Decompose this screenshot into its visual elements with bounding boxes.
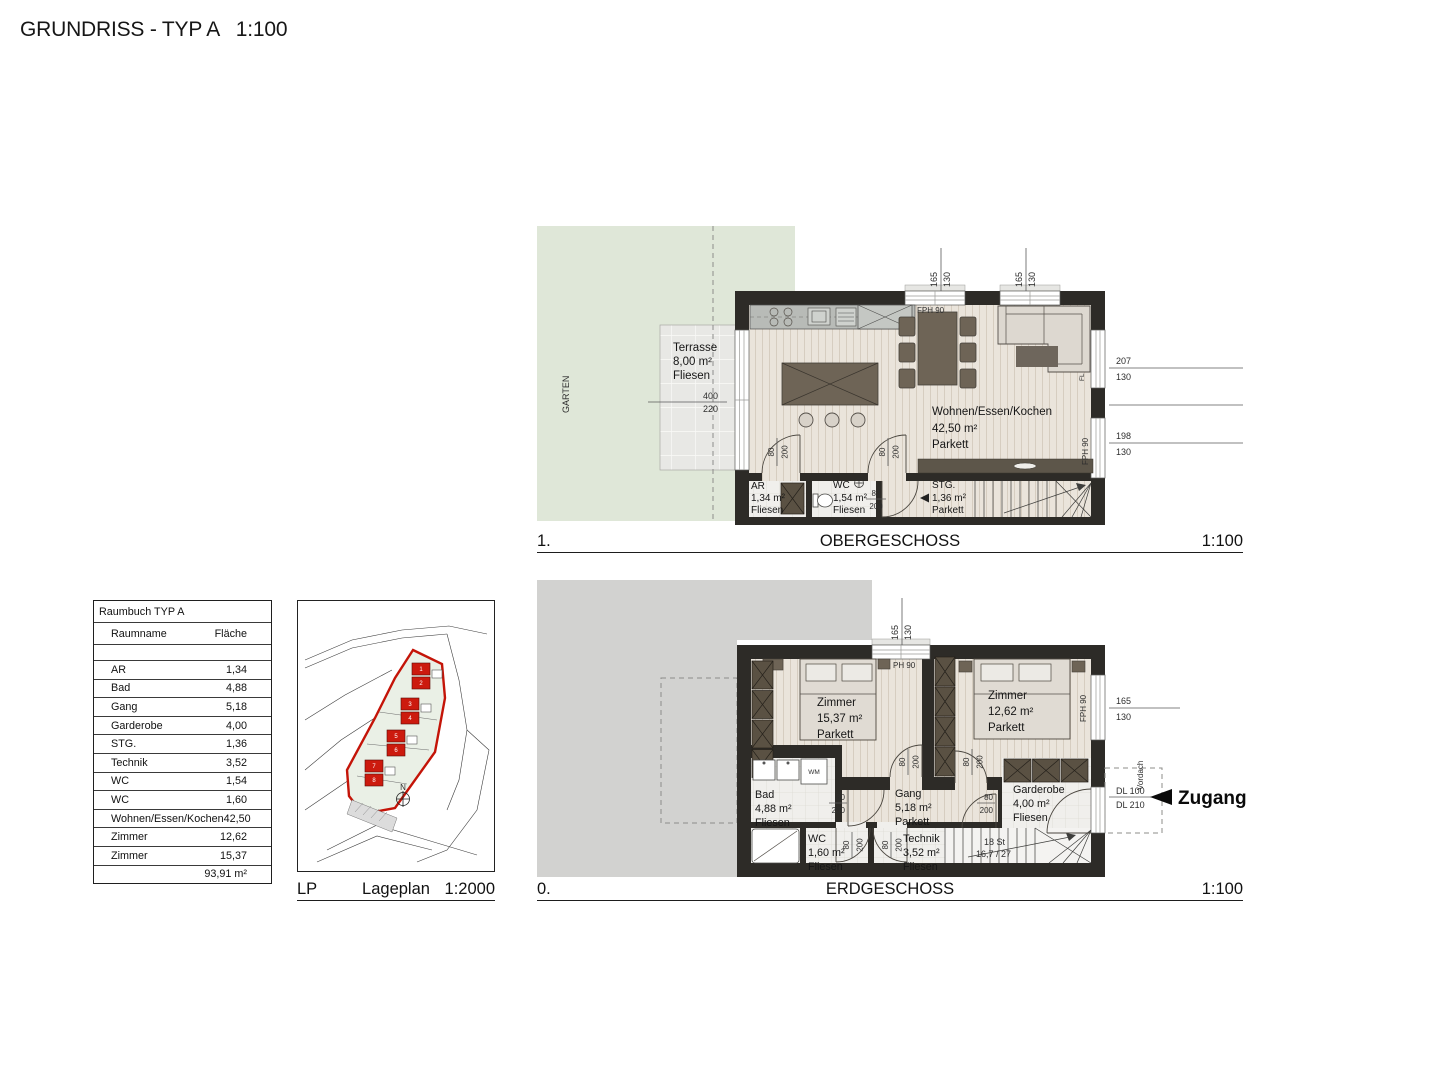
svg-text:Wohnen/Essen/Kochen: Wohnen/Essen/Kochen xyxy=(932,406,1052,418)
garden-label: GARTEN xyxy=(561,376,571,413)
svg-text:200: 200 xyxy=(892,445,901,459)
room-book-table: Raumbuch TYP A Raumname Fläche AR1,34 Ba… xyxy=(93,600,272,884)
svg-text:Fliesen: Fliesen xyxy=(1013,812,1048,824)
svg-text:3,52 m²: 3,52 m² xyxy=(903,847,940,859)
og-top-dims: 165 130 165 130 xyxy=(929,248,1037,291)
svg-text:STG.: STG. xyxy=(932,480,955,491)
svg-text:80: 80 xyxy=(962,757,971,766)
table-row: Zimmer15,37 xyxy=(94,846,271,865)
svg-text:220: 220 xyxy=(703,404,718,414)
chair-icon xyxy=(899,369,915,388)
stool-icon xyxy=(851,413,865,427)
svg-text:5,18 m²: 5,18 m² xyxy=(895,802,932,814)
eg-name: ERDGESCHOSS xyxy=(537,880,1243,899)
svg-text:WC: WC xyxy=(808,833,826,845)
coffee-table xyxy=(1016,346,1058,367)
svg-text:400: 400 xyxy=(703,391,718,401)
svg-text:200: 200 xyxy=(980,806,994,815)
svg-text:200: 200 xyxy=(869,502,883,511)
nightstand-icon xyxy=(878,659,890,669)
window xyxy=(1091,675,1105,740)
svg-text:80: 80 xyxy=(767,447,776,456)
kitchen-island xyxy=(782,363,878,405)
sheet-title: GRUNDRISS - TYP A 1:100 xyxy=(20,18,287,42)
pillow-icon xyxy=(842,664,872,681)
svg-text:1,36 m²: 1,36 m² xyxy=(932,493,967,504)
chair-icon xyxy=(960,343,976,362)
svg-text:200: 200 xyxy=(781,445,790,459)
eg-top-dim: 165 130 xyxy=(890,598,913,645)
vent-symbol-icon xyxy=(855,479,864,488)
svg-text:80: 80 xyxy=(836,793,845,802)
svg-text:130: 130 xyxy=(1116,372,1131,382)
svg-text:165: 165 xyxy=(890,625,900,640)
floor-plan-og: GARTEN Terrasse 8,00 m² Fliesen 400 220 xyxy=(530,190,1250,555)
svg-text:Gang: Gang xyxy=(895,788,921,800)
table-row: Bad4,88 xyxy=(94,679,271,698)
svg-text:Zimmer: Zimmer xyxy=(988,690,1027,702)
svg-text:Fliesen: Fliesen xyxy=(808,861,843,873)
table-row: Garderobe4,00 xyxy=(94,716,271,735)
svg-text:Parkett: Parkett xyxy=(932,505,964,516)
eg-caption: 0. ERDGESCHOSS 1:100 xyxy=(537,879,1243,901)
site-plan: 12 34 56 78 N xyxy=(297,600,495,872)
table-row: STG.1,36 xyxy=(94,734,271,753)
bar-stools xyxy=(799,413,865,427)
svg-text:165: 165 xyxy=(1116,696,1131,706)
svg-text:130: 130 xyxy=(1027,272,1037,287)
og-scale: 1:100 xyxy=(1202,532,1243,551)
svg-text:Fliesen: Fliesen xyxy=(833,505,865,516)
lp-caption: LP Lageplan 1:2000 xyxy=(297,879,495,901)
chair-icon xyxy=(899,343,915,362)
svg-text:Garderobe: Garderobe xyxy=(1013,784,1065,796)
table-header: Raumname Fläche xyxy=(94,622,271,644)
window-sill xyxy=(872,639,930,645)
door-opening xyxy=(955,777,987,790)
technik-label: Technik 3,52 m² Fliesen xyxy=(903,833,940,873)
svg-text:200: 200 xyxy=(832,806,846,815)
svg-text:200: 200 xyxy=(976,755,985,769)
svg-text:80: 80 xyxy=(898,757,907,766)
svg-text:DL 210: DL 210 xyxy=(1116,800,1145,810)
wardrobe-garderobe xyxy=(1004,759,1088,782)
svg-text:Fliesen: Fliesen xyxy=(903,861,938,873)
col-room: Raumname xyxy=(111,628,167,640)
zugang-arrow-icon xyxy=(1150,789,1172,805)
chair-icon xyxy=(899,317,915,336)
svg-text:130: 130 xyxy=(903,625,913,640)
lp-scale: 1:2000 xyxy=(445,880,495,899)
svg-text:1,54 m²: 1,54 m² xyxy=(833,493,868,504)
table-row: AR1,34 xyxy=(94,660,271,679)
svg-text:Fliesen: Fliesen xyxy=(673,370,710,382)
window xyxy=(1091,330,1105,388)
floor-plan-eg: WM 18 St 16,7 / 27 80 200 xyxy=(530,570,1250,915)
window-type-label: PH 90 xyxy=(893,661,916,670)
svg-text:130: 130 xyxy=(1116,712,1131,722)
zugang-label: Zugang xyxy=(1178,788,1247,809)
table-row: Technik3,52 xyxy=(94,753,271,772)
toilet-icon xyxy=(813,494,833,507)
nightstand-icon xyxy=(1072,661,1085,672)
table-row: WC1,60 xyxy=(94,790,271,809)
svg-text:80: 80 xyxy=(881,840,890,849)
pillow-icon xyxy=(981,664,1013,681)
svg-text:130: 130 xyxy=(942,272,952,287)
door-opening xyxy=(836,822,866,828)
svg-text:80: 80 xyxy=(878,447,887,456)
svg-text:Parkett: Parkett xyxy=(817,729,854,741)
entrance-door xyxy=(1091,787,1105,833)
og-right-dims: 207 130 198 130 xyxy=(1109,356,1243,457)
window-type-label: FPH 90 xyxy=(917,306,945,315)
table-total: 93,91 m² xyxy=(94,865,271,884)
eg-right-dim: 165 130 xyxy=(1109,696,1180,722)
col-area: Fläche xyxy=(215,628,247,640)
table-row: Zimmer12,62 xyxy=(94,827,271,846)
door-opening xyxy=(762,473,800,481)
svg-text:WM: WM xyxy=(808,769,820,776)
svg-text:165: 165 xyxy=(1014,272,1024,287)
svg-text:Terrasse: Terrasse xyxy=(673,342,717,354)
door-opening xyxy=(868,473,906,481)
svg-text:42,50 m²: 42,50 m² xyxy=(932,423,978,435)
svg-text:Parkett: Parkett xyxy=(895,816,929,828)
nightstand-icon xyxy=(959,661,972,672)
svg-text:WC: WC xyxy=(833,480,850,491)
svg-text:DL 100: DL 100 xyxy=(1116,786,1145,796)
svg-text:12,62 m²: 12,62 m² xyxy=(988,706,1034,718)
og-caption: 1. OBERGESCHOSS 1:100 xyxy=(537,531,1243,553)
svg-text:130: 130 xyxy=(1116,447,1131,457)
window-type-label: FPH 90 xyxy=(1079,694,1088,722)
svg-text:80: 80 xyxy=(984,793,993,802)
stair-ratio-label: 16,7 / 27 xyxy=(976,849,1011,859)
svg-text:207: 207 xyxy=(1116,356,1131,366)
stair-steps-label: 18 St xyxy=(984,837,1006,847)
svg-text:80: 80 xyxy=(872,489,881,498)
bowl-icon xyxy=(1014,463,1036,469)
svg-text:Zimmer: Zimmer xyxy=(817,697,856,709)
table-row: WC1,54 xyxy=(94,772,271,791)
svg-text:AR: AR xyxy=(751,481,765,492)
drawing-sheet: GRUNDRISS - TYP A 1:100 Raumbuch TYP A R… xyxy=(0,0,1440,1080)
svg-text:8,00 m²: 8,00 m² xyxy=(673,356,712,368)
kitchen-counter xyxy=(750,305,915,329)
dining-table xyxy=(918,312,957,385)
table-title: Raumbuch TYP A xyxy=(94,601,271,622)
pillow-icon xyxy=(1019,664,1051,681)
window-type-label: FL xyxy=(1079,373,1086,381)
svg-text:Bad: Bad xyxy=(755,789,774,801)
chair-icon xyxy=(960,317,976,336)
svg-text:1,34 m²: 1,34 m² xyxy=(751,493,786,504)
chair-icon xyxy=(960,369,976,388)
eg-scale: 1:100 xyxy=(1202,880,1243,899)
table-row: Wohnen/Essen/Kochen42,50 xyxy=(94,809,271,828)
stool-icon xyxy=(825,413,839,427)
entry-annotation: Vordach DL 100 DL 210 Zugang xyxy=(1105,761,1247,833)
window-type-label: FPH 90 xyxy=(1081,437,1090,465)
svg-text:Fliesen: Fliesen xyxy=(751,505,783,516)
svg-text:15,37 m²: 15,37 m² xyxy=(817,713,863,725)
sink-icon xyxy=(836,308,856,326)
svg-text:Parkett: Parkett xyxy=(932,439,969,451)
svg-text:Fliesen: Fliesen xyxy=(755,817,790,829)
table-row: Gang5,18 xyxy=(94,697,271,716)
stool-icon xyxy=(799,413,813,427)
svg-text:N: N xyxy=(400,783,406,792)
svg-text:198: 198 xyxy=(1116,431,1131,441)
table-blank-row xyxy=(94,644,271,660)
svg-text:200: 200 xyxy=(912,755,921,769)
svg-text:165: 165 xyxy=(929,272,939,287)
oven-icon xyxy=(808,308,830,325)
og-name: OBERGESCHOSS xyxy=(537,532,1243,551)
svg-text:1,60 m²: 1,60 m² xyxy=(808,847,845,859)
svg-text:4,88 m²: 4,88 m² xyxy=(755,803,792,815)
svg-text:Parkett: Parkett xyxy=(988,722,1025,734)
sideboard xyxy=(918,459,1093,473)
pillow-icon xyxy=(806,664,836,681)
svg-text:4,00 m²: 4,00 m² xyxy=(1013,798,1050,810)
svg-text:200: 200 xyxy=(856,838,865,852)
dining-set xyxy=(899,312,976,388)
svg-text:Technik: Technik xyxy=(903,833,940,845)
